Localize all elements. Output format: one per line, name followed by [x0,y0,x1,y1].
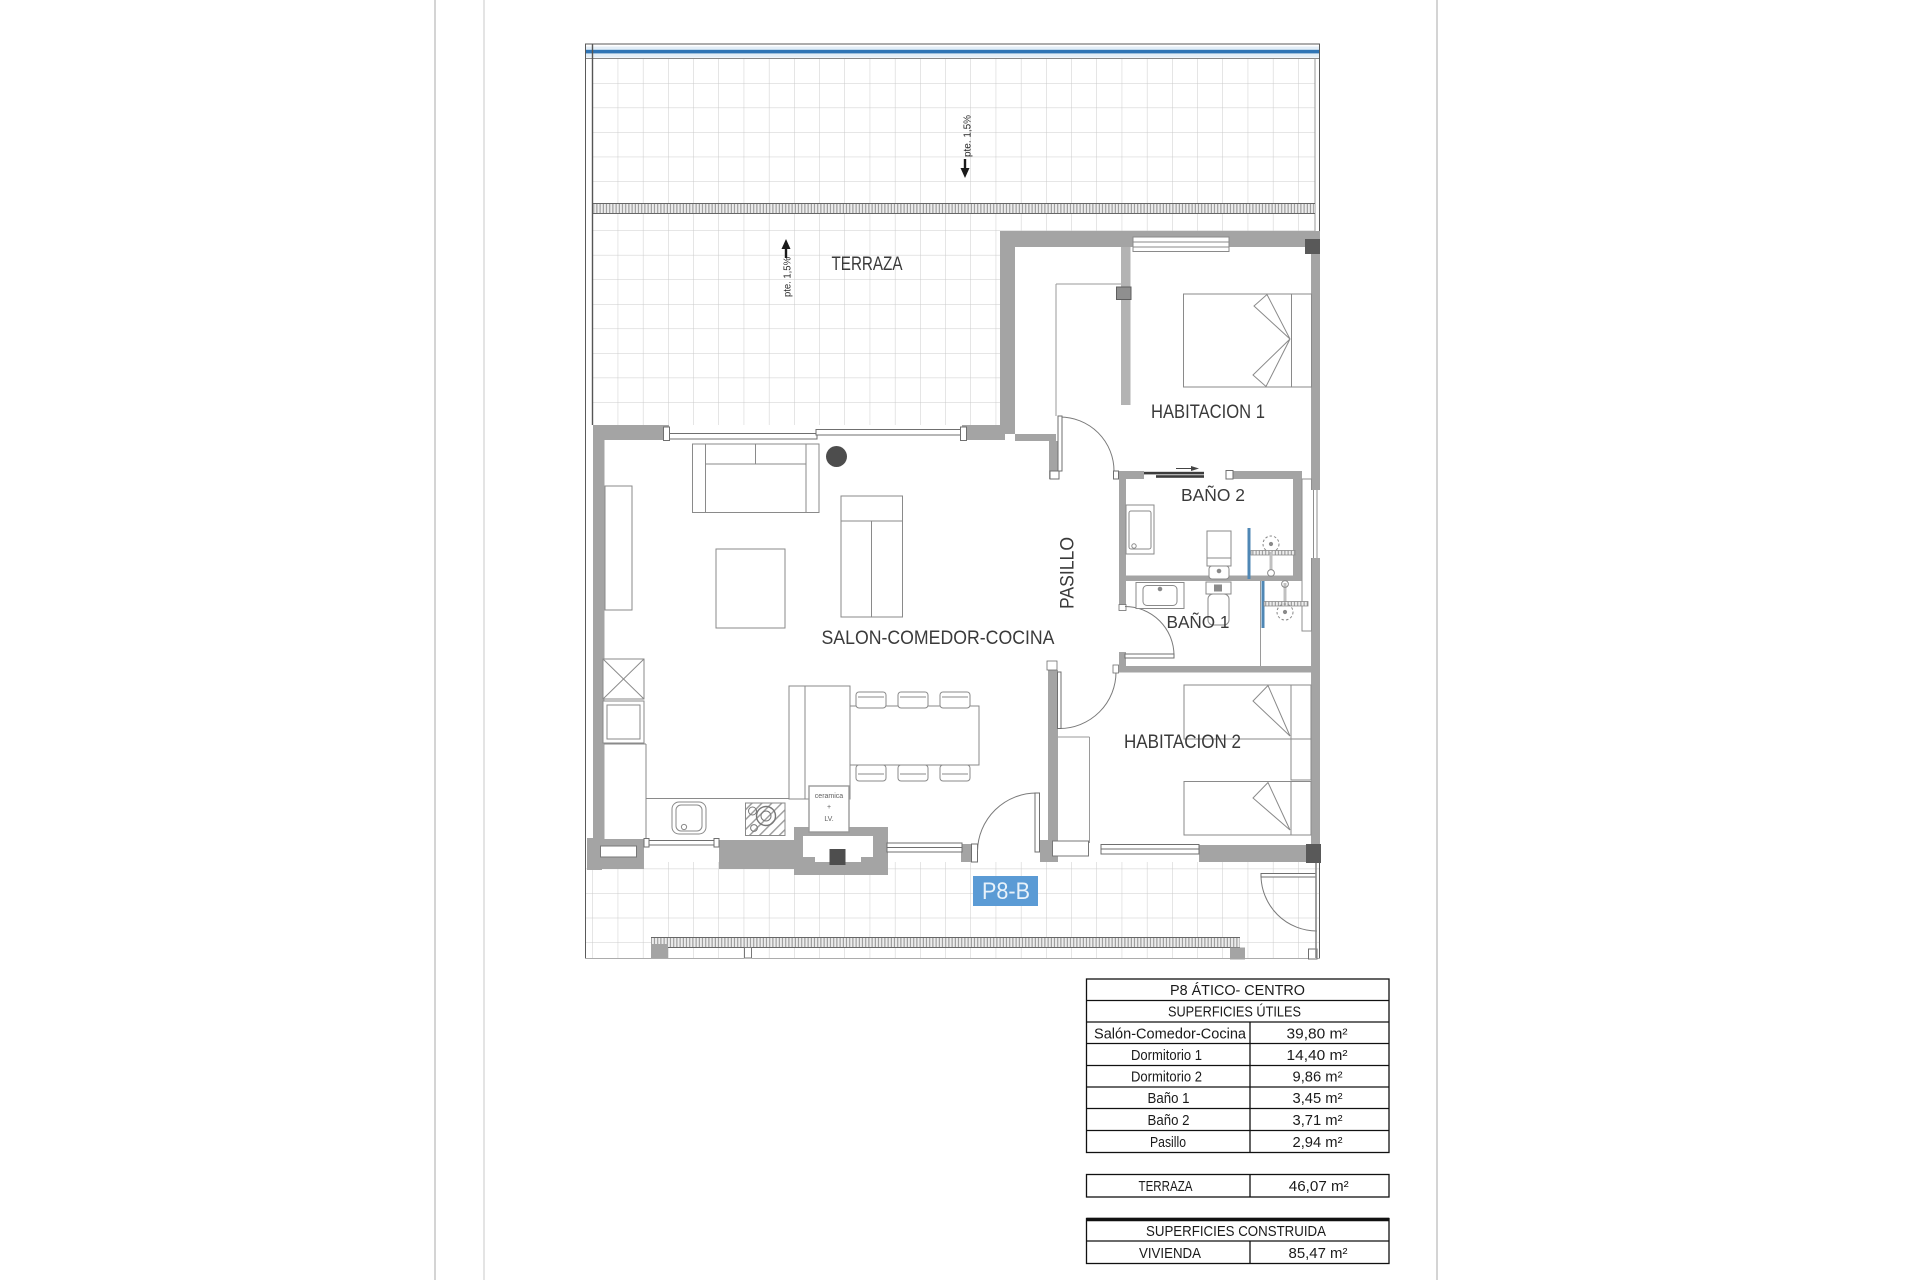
svg-text:P8-B: P8-B [982,878,1030,905]
svg-text:pte. 1,5%: pte. 1,5% [962,115,974,157]
svg-text:3,45 m²: 3,45 m² [1293,1091,1343,1107]
svg-text:SUPERFICIES CONSTRUIDA: SUPERFICIES CONSTRUIDA [1146,1224,1326,1240]
svg-text:pte. 1,5%: pte. 1,5% [782,257,794,297]
svg-text:Baño 2: Baño 2 [1148,1113,1190,1129]
svg-text:Baño 1: Baño 1 [1148,1091,1190,1107]
svg-text:85,47 m²: 85,47 m² [1289,1246,1348,1262]
svg-text:46,07 m²: 46,07 m² [1289,1179,1349,1195]
svg-text:Dormitorio 1: Dormitorio 1 [1131,1048,1202,1064]
svg-text:LV.: LV. [824,816,833,823]
svg-text:SALON-COMEDOR-COCINA: SALON-COMEDOR-COCINA [822,627,1055,649]
svg-text:TERRAZA: TERRAZA [832,253,903,275]
svg-text:9,86 m²: 9,86 m² [1293,1070,1343,1086]
svg-text:ceramica: ceramica [815,793,844,800]
svg-text:BAÑO 2: BAÑO 2 [1181,484,1245,505]
svg-text:39,80 m²: 39,80 m² [1287,1027,1348,1043]
svg-text:HABITACION 2: HABITACION 2 [1124,731,1241,753]
svg-text:TERRAZA: TERRAZA [1139,1179,1193,1195]
svg-text:SUPERFICIES ÚTILES: SUPERFICIES ÚTILES [1168,1004,1301,1021]
svg-text:Salón-Comedor-Cocina: Salón-Comedor-Cocina [1094,1027,1247,1043]
svg-text:2,94 m²: 2,94 m² [1293,1135,1343,1151]
svg-text:Pasillo: Pasillo [1150,1135,1186,1151]
svg-text:P8 ÁTICO- CENTRO: P8 ÁTICO- CENTRO [1170,982,1305,999]
svg-text:+: + [827,804,831,811]
svg-text:3,71 m²: 3,71 m² [1293,1113,1343,1129]
svg-text:VIVIENDA: VIVIENDA [1139,1246,1201,1262]
svg-text:PASILLO: PASILLO [1057,537,1079,609]
svg-text:14,40 m²: 14,40 m² [1287,1048,1348,1064]
svg-text:BAÑO 1: BAÑO 1 [1167,611,1230,632]
svg-text:HABITACION 1: HABITACION 1 [1151,401,1265,423]
svg-text:Dormitorio 2: Dormitorio 2 [1131,1070,1202,1086]
